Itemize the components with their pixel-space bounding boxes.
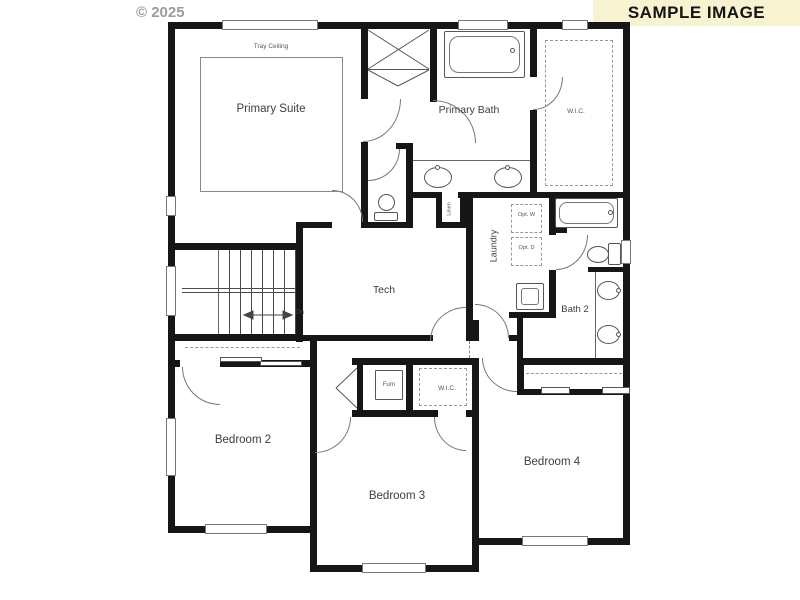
primary-suite-label: Primary Suite (226, 102, 316, 116)
primary-bath-label: Primary Bath (434, 104, 504, 117)
line-overlay (0, 0, 800, 600)
bedroom3-label: Bedroom 3 (357, 489, 437, 503)
tray-ceiling-label: Tray Ceiling (236, 43, 306, 51)
shower-door-line (368, 70, 398, 86)
bedroom2-label: Bedroom 2 (203, 433, 283, 447)
wic-bedroom3-label: W.I.C. (425, 385, 469, 393)
stairs-arrow-head (283, 311, 292, 319)
bedroom4-label: Bedroom 4 (512, 455, 592, 469)
stairs-arrow-head (244, 311, 253, 319)
laundry-label: Laundry (488, 230, 499, 263)
shower-door-line (398, 70, 429, 86)
bifold-door-line (336, 368, 357, 388)
bifold-door-line (336, 388, 357, 408)
wic-primary-label: W.I.C. (556, 108, 596, 116)
bath2-label: Bath 2 (556, 304, 594, 316)
floor-plan: © 2025 SAMPLE IMAGE (0, 0, 800, 600)
tech-label: Tech (354, 284, 414, 297)
linen-label: Linen (447, 202, 454, 215)
